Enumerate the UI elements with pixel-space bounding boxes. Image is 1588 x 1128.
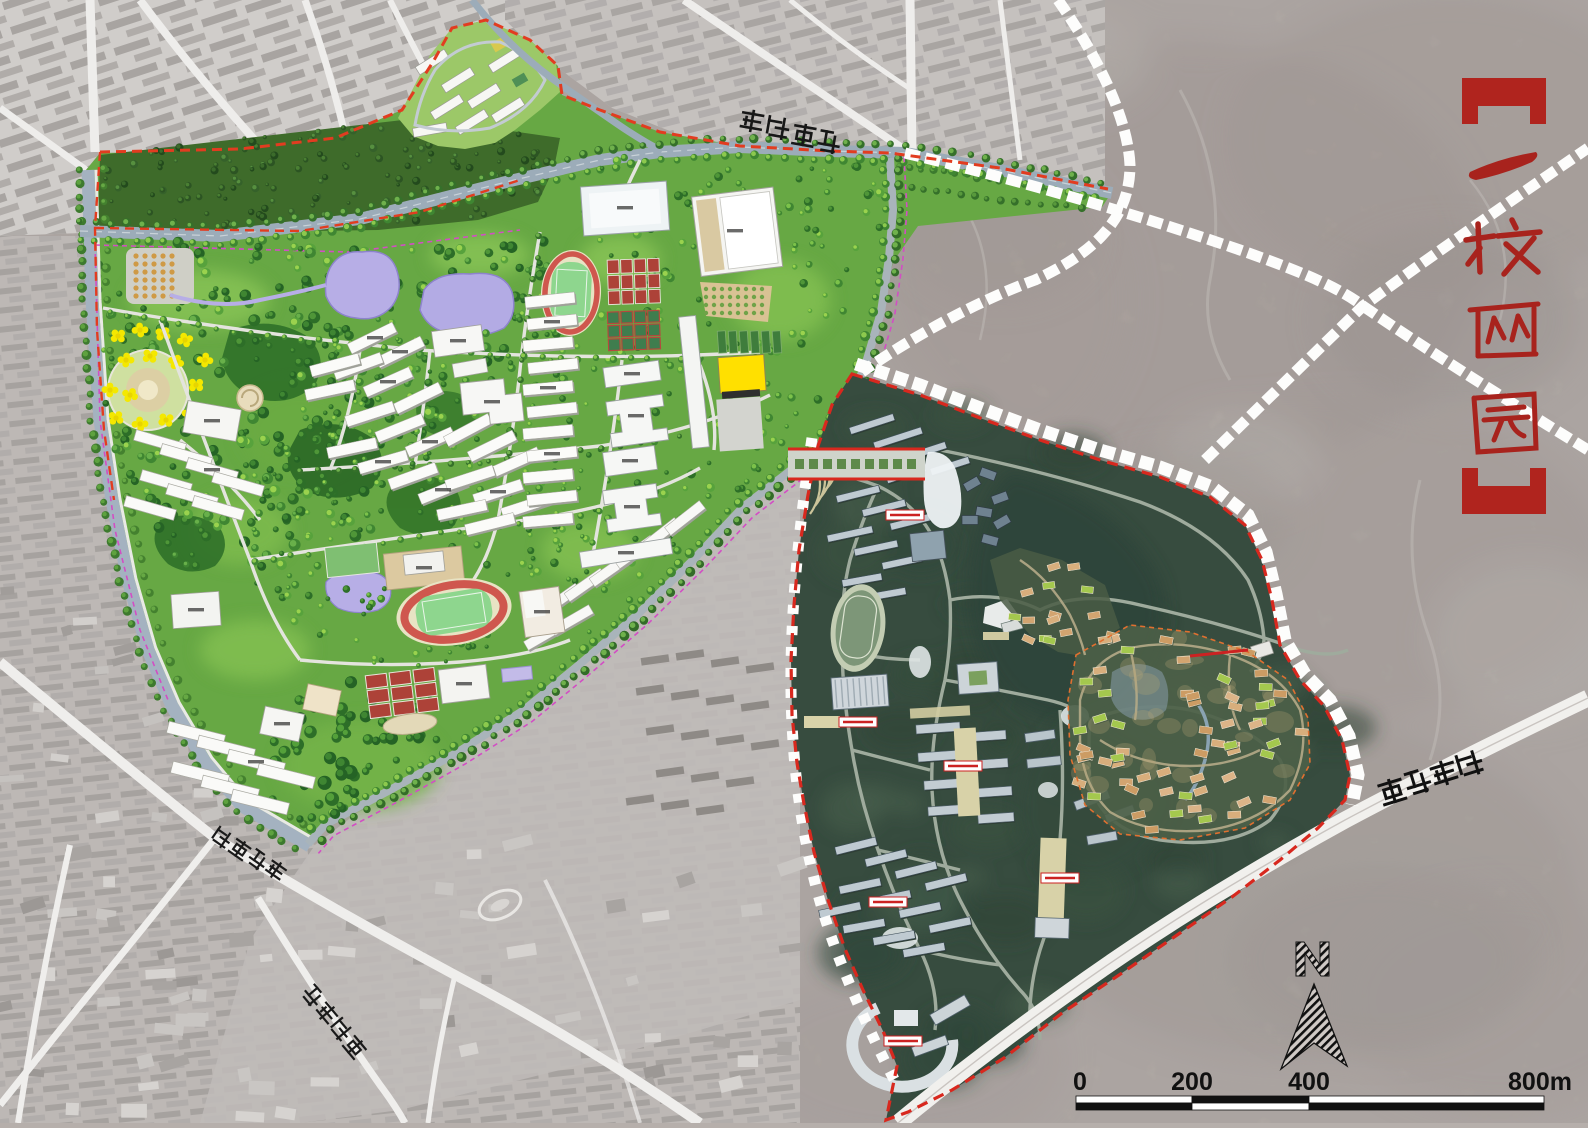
svg-text:800m: 800m: [1508, 1068, 1572, 1096]
svg-text:200: 200: [1171, 1068, 1213, 1096]
svg-text:400: 400: [1288, 1068, 1330, 1096]
svg-text:0: 0: [1073, 1068, 1087, 1096]
